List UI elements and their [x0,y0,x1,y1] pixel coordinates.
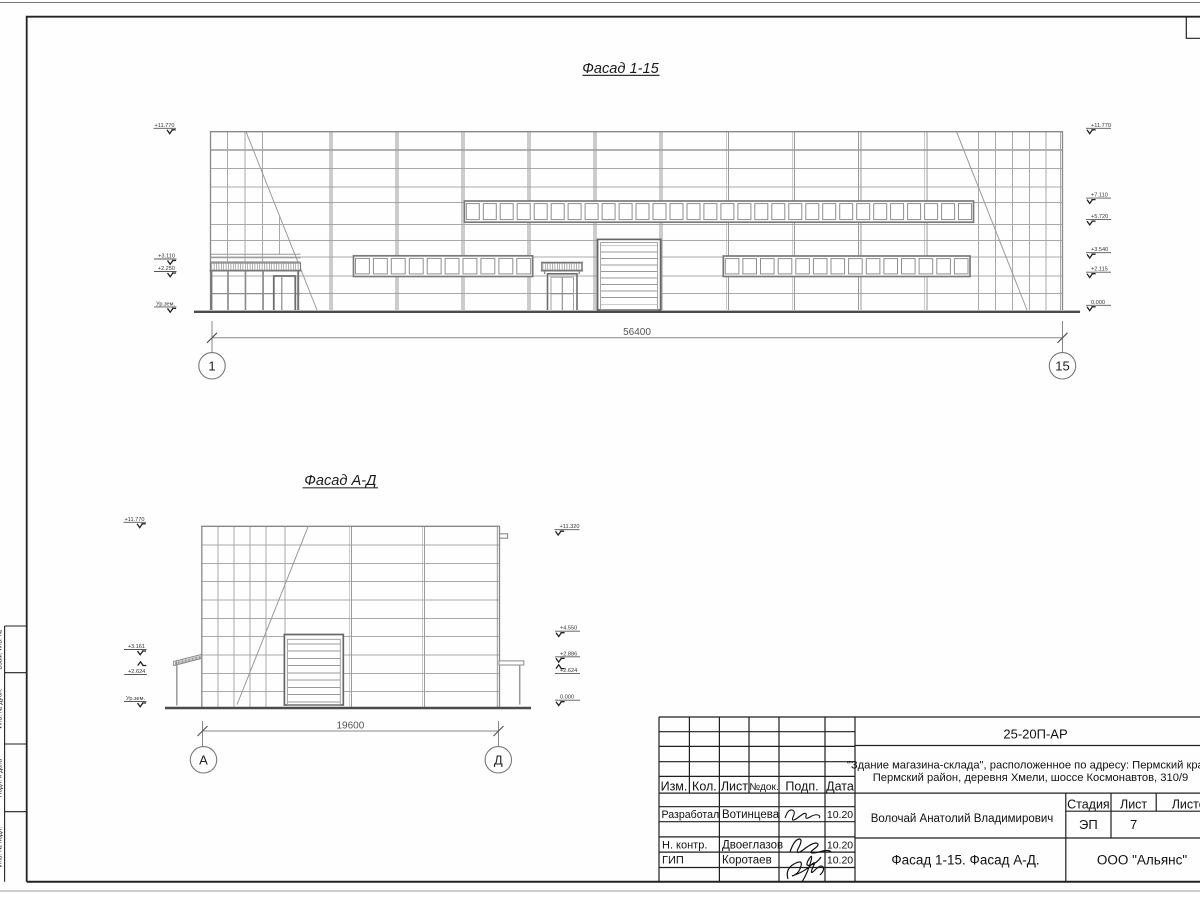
svg-text:56400: 56400 [623,327,651,338]
svg-text:19600: 19600 [336,720,364,731]
svg-text:Н. контр.: Н. контр. [662,839,707,851]
svg-text:Коротаев: Коротаев [722,855,772,867]
svg-text:№док.: №док. [749,782,778,793]
svg-text:Пермский район, деревня Хмели,: Пермский район, деревня Хмели, шоссе Кос… [873,772,1189,784]
svg-text:А: А [199,752,208,767]
svg-text:Фасад 1-15: Фасад 1-15 [582,61,659,77]
svg-text:Лист: Лист [721,780,748,794]
svg-text:Изм.: Изм. [661,780,688,794]
svg-text:Двоеглазов: Двоеглазов [722,839,783,851]
svg-text:Инв. № подл.: Инв. № подл. [0,827,4,868]
svg-text:ГИП: ГИП [662,855,684,867]
svg-text:"Здание магазина-склада", расп: "Здание магазина-склада", расположенное … [847,760,1200,772]
svg-text:Д: Д [494,752,503,767]
svg-text:Дата: Дата [826,780,854,794]
svg-text:7: 7 [1130,817,1137,832]
svg-text:10.20: 10.20 [827,855,853,867]
svg-text:Подп.: Подп. [785,780,818,794]
svg-text:Стадия: Стадия [1067,797,1110,811]
svg-text:1: 1 [208,358,215,373]
svg-text:Волочай Анатолий Владимирович: Волочай Анатолий Владимирович [871,813,1054,825]
svg-text:Взам. инв. №: Взам. инв. № [0,629,4,669]
svg-text:Инв. № дубл.: Инв. № дубл. [0,688,4,728]
svg-text:10.20: 10.20 [827,809,853,821]
svg-text:Фасад 1-15. Фасад А-Д.: Фасад 1-15. Фасад А-Д. [891,852,1039,867]
svg-text:ЭП: ЭП [1079,817,1098,832]
svg-text:Фасад А-Д: Фасад А-Д [304,473,376,489]
svg-text:Листов: Листов [1172,797,1200,811]
svg-text:15: 15 [1055,358,1069,373]
svg-text:25-20П-АР: 25-20П-АР [1003,727,1067,742]
svg-text:Лист: Лист [1120,797,1147,811]
svg-text:Вотинцева: Вотинцева [722,809,780,821]
svg-text:10.20: 10.20 [827,839,853,851]
svg-text:Кол.: Кол. [692,780,717,794]
svg-text:Разработал: Разработал [662,809,720,821]
svg-text:Подп. и дата: Подп. и дата [0,758,4,797]
svg-text:ООО "Альянс": ООО "Альянс" [1097,852,1187,867]
